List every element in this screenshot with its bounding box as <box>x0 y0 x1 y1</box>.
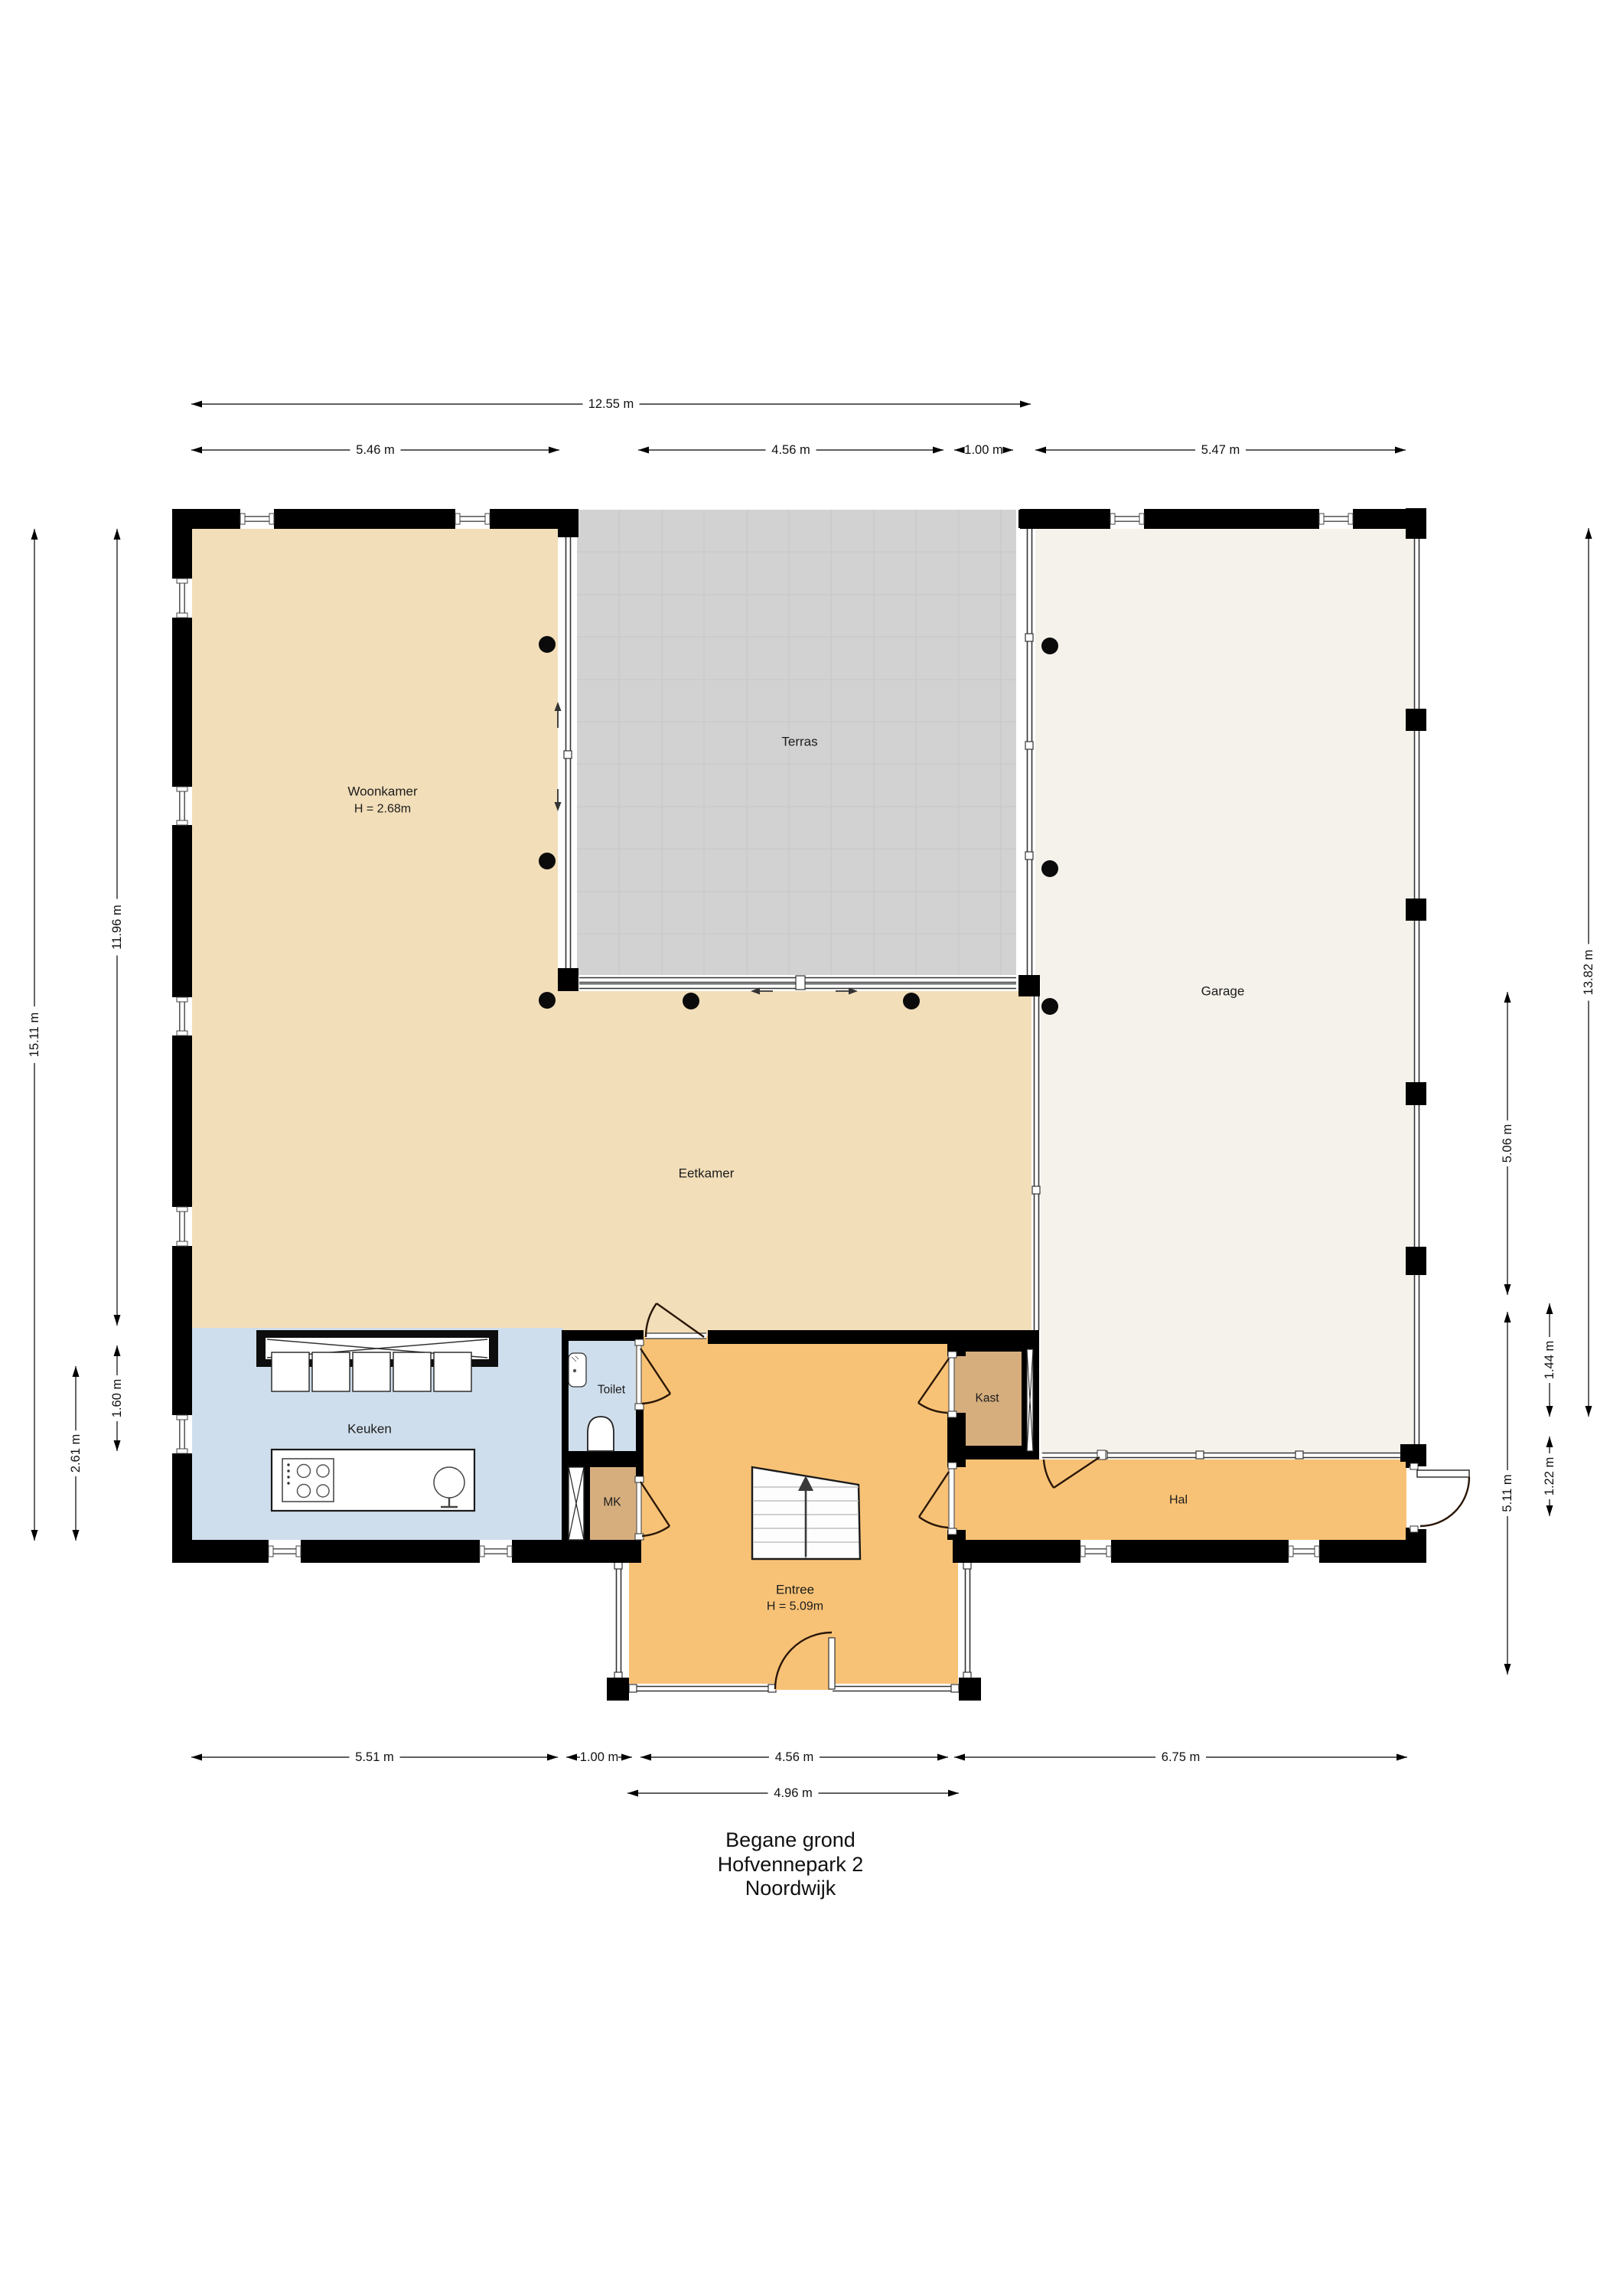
svg-text:1.44 m: 1.44 m <box>1543 1341 1556 1379</box>
svg-text:H = 5.09m: H = 5.09m <box>767 1600 823 1613</box>
svg-text:4.96 m: 4.96 m <box>774 1786 812 1800</box>
svg-text:4.56 m: 4.56 m <box>775 1750 813 1764</box>
svg-text:6.75 m: 6.75 m <box>1162 1750 1200 1764</box>
svg-text:Garage: Garage <box>1201 984 1245 999</box>
svg-text:5.51 m: 5.51 m <box>355 1750 393 1764</box>
svg-text:2.61 m: 2.61 m <box>69 1434 83 1473</box>
svg-text:Toilet: Toilet <box>598 1384 626 1397</box>
svg-text:1.60 m: 1.60 m <box>110 1379 124 1417</box>
svg-text:4.56 m: 4.56 m <box>771 443 810 457</box>
svg-text:11.96 m: 11.96 m <box>110 905 124 949</box>
svg-text:Hal: Hal <box>1169 1494 1188 1507</box>
svg-text:5.11 m: 5.11 m <box>1501 1474 1514 1512</box>
svg-text:15.11 m: 15.11 m <box>28 1013 41 1057</box>
svg-text:Woonkamer: Woonkamer <box>347 784 418 799</box>
svg-text:Terras: Terras <box>781 735 817 749</box>
svg-text:5.46 m: 5.46 m <box>356 443 394 457</box>
svg-text:H = 2.68m: H = 2.68m <box>354 803 411 816</box>
svg-text:Hofvennepark 2: Hofvennepark 2 <box>718 1853 864 1876</box>
svg-text:Entree: Entree <box>776 1583 814 1597</box>
svg-text:Noordwijk: Noordwijk <box>745 1877 836 1900</box>
svg-text:Keuken: Keuken <box>347 1422 392 1437</box>
svg-text:MK: MK <box>603 1496 621 1509</box>
svg-text:12.55 m: 12.55 m <box>588 397 634 411</box>
svg-text:1.22 m: 1.22 m <box>1543 1457 1556 1495</box>
svg-text:5.47 m: 5.47 m <box>1201 443 1240 457</box>
svg-text:Begane grond: Begane grond <box>725 1828 855 1851</box>
svg-text:1.00 m: 1.00 m <box>580 1750 618 1764</box>
svg-text:Eetkamer: Eetkamer <box>679 1166 735 1181</box>
svg-text:Kast: Kast <box>975 1392 999 1405</box>
svg-text:1.00 m: 1.00 m <box>964 443 1002 457</box>
svg-text:13.82 m: 13.82 m <box>1582 950 1595 996</box>
svg-text:5.06 m: 5.06 m <box>1501 1124 1514 1163</box>
